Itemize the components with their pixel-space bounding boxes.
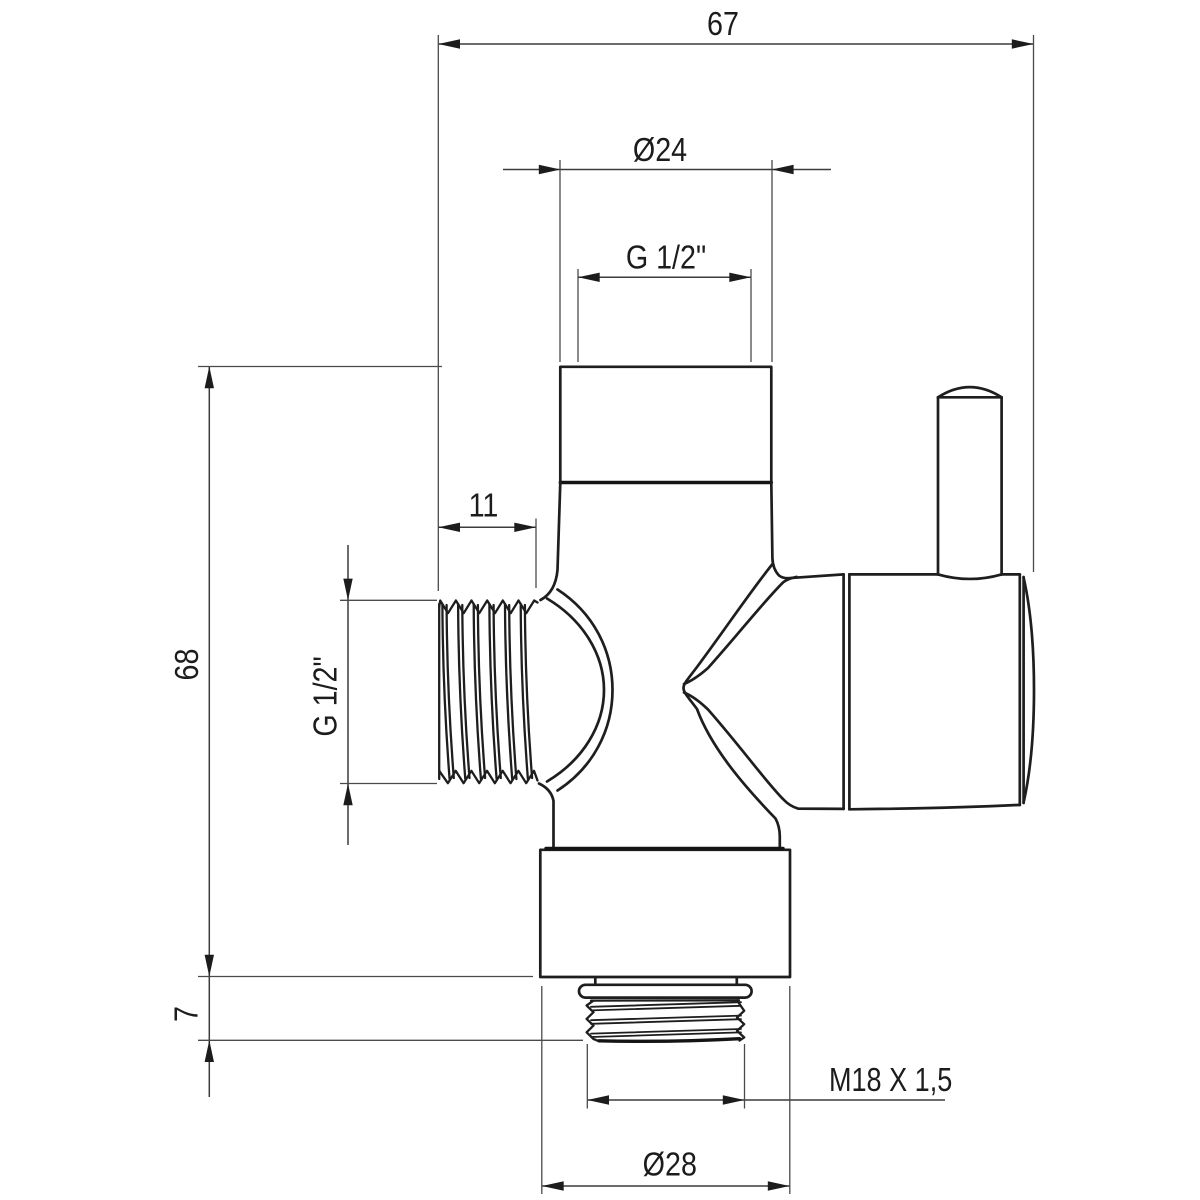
- svg-text:68: 68: [168, 649, 205, 681]
- svg-text:M18 X 1,5: M18 X 1,5: [829, 1063, 952, 1099]
- svg-text:11: 11: [469, 487, 499, 524]
- svg-text:G 1/2": G 1/2": [307, 656, 344, 736]
- svg-text:G 1/2": G 1/2": [626, 239, 706, 276]
- svg-text:7: 7: [168, 1006, 205, 1022]
- svg-text:Ø28: Ø28: [643, 1146, 697, 1183]
- svg-text:Ø24: Ø24: [633, 131, 687, 168]
- svg-text:67: 67: [707, 5, 739, 42]
